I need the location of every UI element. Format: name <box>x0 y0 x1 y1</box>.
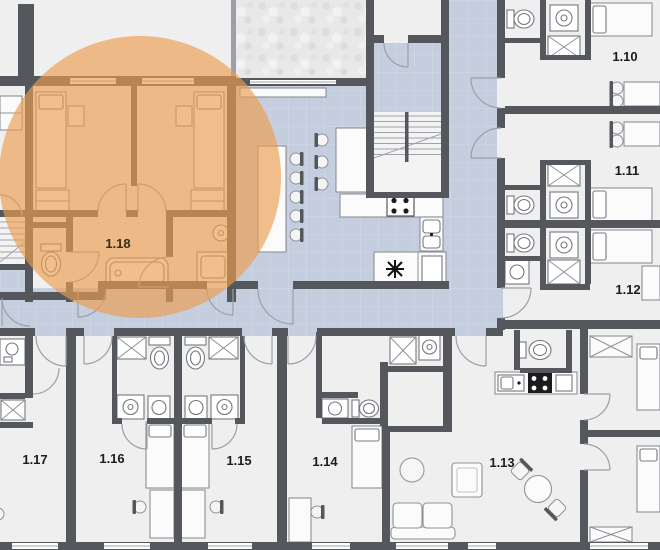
desk <box>289 498 311 542</box>
chair-icon <box>610 94 624 108</box>
chair-icon <box>311 505 325 519</box>
sofa <box>391 503 455 539</box>
bed <box>181 422 209 488</box>
toilet-icon <box>149 337 170 369</box>
floor-plan-canvas: 1.10 1.11 1.12 1.13 1.14 1.15 1.16 1.17 … <box>0 0 660 550</box>
toilet-icon <box>518 341 551 360</box>
unit-label-1-10[interactable]: 1.10 <box>612 49 637 64</box>
unit-label-1-17[interactable]: 1.17 <box>22 452 47 467</box>
bed <box>590 188 652 221</box>
unit-label-1-12[interactable]: 1.12 <box>615 282 640 297</box>
shower-icon <box>117 337 146 359</box>
shower-icon <box>390 337 416 364</box>
table <box>624 82 660 106</box>
chair-icon <box>610 121 624 135</box>
kitchenette <box>495 372 577 394</box>
stove-icon <box>387 195 414 216</box>
unit-label-1-18[interactable]: 1.18 <box>105 236 130 251</box>
unit-highlight-circle[interactable] <box>0 36 281 318</box>
bed <box>590 230 652 263</box>
table <box>642 266 660 300</box>
washbasin-icon <box>0 339 25 365</box>
coffee-table <box>452 463 482 497</box>
sink-icon <box>423 220 440 233</box>
toilet-icon <box>507 10 534 28</box>
unit-label-1-16[interactable]: 1.16 <box>99 451 124 466</box>
washer-icon <box>211 395 238 419</box>
table <box>624 122 660 146</box>
unit-label-1-11[interactable]: 1.11 <box>615 163 640 178</box>
floor-plan: 1.10 1.11 1.12 1.13 1.14 1.15 1.16 1.17 … <box>0 0 660 550</box>
terrace <box>231 0 366 78</box>
washer-icon <box>550 192 578 218</box>
toilet-icon <box>352 400 379 417</box>
bed <box>352 426 382 488</box>
desk <box>150 490 174 538</box>
unit-label-1-13[interactable]: 1.13 <box>489 455 514 470</box>
toilet-icon <box>507 234 534 252</box>
washer-icon <box>550 232 578 258</box>
cooktop-icon <box>386 260 404 278</box>
sink-icon <box>505 260 529 284</box>
toilet-icon <box>185 337 206 369</box>
washbasin-icon <box>148 396 170 419</box>
washer-icon <box>419 334 440 360</box>
shower-icon <box>548 36 580 58</box>
unit-label-1-14[interactable]: 1.14 <box>312 454 338 469</box>
chair-icon <box>210 500 224 514</box>
side-table <box>400 458 424 482</box>
desk <box>181 490 205 538</box>
washer-icon <box>117 395 144 419</box>
bed <box>590 3 652 36</box>
washbasin-icon <box>185 396 207 419</box>
washbasin-icon <box>322 399 348 418</box>
unit-label-1-15[interactable]: 1.15 <box>226 453 251 468</box>
staircase-main <box>374 112 441 194</box>
shower-icon <box>548 260 580 284</box>
chair-icon <box>610 134 624 148</box>
shower-icon <box>209 337 238 359</box>
chair-icon <box>133 500 147 514</box>
chair-icon <box>610 81 624 95</box>
toilet-icon <box>507 196 534 214</box>
washer-icon <box>550 5 578 31</box>
bed <box>146 422 174 488</box>
stove-icon <box>528 373 552 393</box>
shower-icon <box>548 164 580 186</box>
shower-icon <box>1 400 25 420</box>
